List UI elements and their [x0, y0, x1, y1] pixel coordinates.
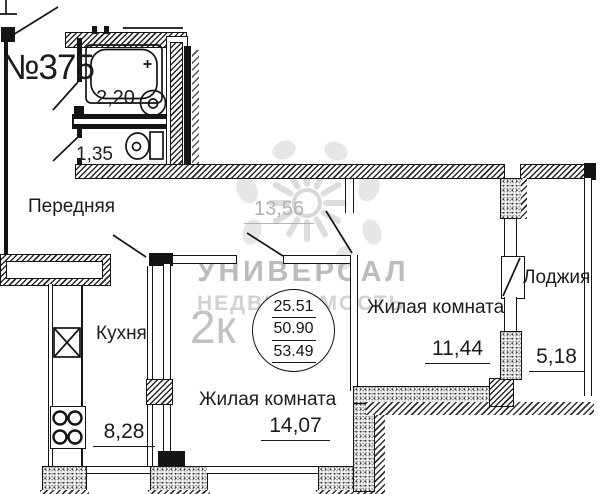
vent-stub-1	[92, 26, 97, 34]
toilet-drain	[133, 143, 141, 151]
toilet-area: 1,35	[76, 144, 113, 166]
room-label-living1: Жилая комната	[199, 389, 336, 411]
living2-area: 11,44	[425, 337, 490, 364]
living1-area: 14,07	[261, 414, 330, 441]
summary-type: 2к	[190, 300, 236, 354]
footing-hatch-2	[148, 490, 210, 494]
pillar-loggia-corner	[489, 378, 514, 407]
window-room1	[207, 466, 319, 474]
washbasin	[141, 91, 166, 116]
summary-living-area: 25.51	[272, 298, 316, 319]
kitchen-sink	[54, 328, 80, 357]
toilet-door-swing	[53, 137, 78, 161]
footing-hatch-1	[40, 490, 89, 494]
vent-stub-2	[104, 26, 109, 34]
pillar-loggia-bottom	[500, 331, 522, 380]
bathroom-area: 2,20	[96, 87, 135, 110]
room-label-loggia: Лоджия	[523, 267, 590, 289]
toilet-bowl	[126, 133, 149, 159]
wall-room1-right-hatch	[375, 404, 385, 494]
stove	[50, 406, 86, 449]
duct-shaft-hatch	[170, 42, 183, 165]
kitchen-area: 8,28	[93, 420, 155, 447]
kitchen-sink-cross	[54, 328, 80, 357]
floor-plan: УНИВЕРСАЛ НЕДВИЖИМОСТЬ	[0, 0, 600, 494]
apartment-number: №375	[2, 48, 94, 88]
bathtub-tap-icon	[144, 60, 152, 68]
summary-total-area: 53.49	[272, 343, 316, 364]
pilaster-kitchen-wall	[146, 379, 173, 405]
wall-room2-bottom-hatch	[366, 402, 594, 415]
wall-top-loggia	[520, 164, 586, 179]
pillar-loggia-top-hatch	[521, 178, 527, 219]
window-loggia-upper	[504, 219, 517, 258]
pillar-bottom-2	[150, 466, 208, 492]
entrance-door-jamb	[1, 27, 15, 42]
toilet-tank	[150, 132, 163, 159]
loggia-area: 5,18	[529, 345, 584, 372]
room-label-kitchen: Кухня	[96, 323, 147, 345]
wall-room1-left	[163, 264, 171, 470]
wall-bathroom-right	[184, 46, 191, 169]
pillar-loggia-top	[500, 178, 522, 219]
room-label-hallway: Передняя	[28, 196, 115, 218]
washbasin-drain	[149, 99, 158, 108]
area-summary-circle: 25.51 50.90 53.49	[252, 289, 335, 372]
summary-usable-area: 50.90	[272, 320, 316, 341]
vent-block-inner	[6, 261, 103, 279]
wall-top-main	[75, 164, 505, 179]
window-kitchen	[87, 466, 150, 474]
wall-hall-room1-right	[283, 255, 357, 264]
corridor-stub	[0, 0, 17, 14]
kitchen-door-swing	[113, 235, 146, 257]
room-label-living2: Жилая комната	[367, 297, 504, 319]
window-loggia-lower	[504, 297, 517, 333]
kitchen-counter-line-upper	[81, 286, 83, 406]
pillar-bottom-1	[42, 466, 87, 492]
balcony-door	[501, 256, 525, 299]
wall-bath-toilet-partition	[72, 114, 168, 129]
entrance-door-swing	[8, 7, 58, 38]
wall-bathroom-right-ticks	[192, 50, 199, 168]
wall-stub-room2-door	[345, 179, 354, 213]
wall-room1-room2	[350, 255, 358, 391]
hallway-area: 13,56	[244, 198, 314, 224]
